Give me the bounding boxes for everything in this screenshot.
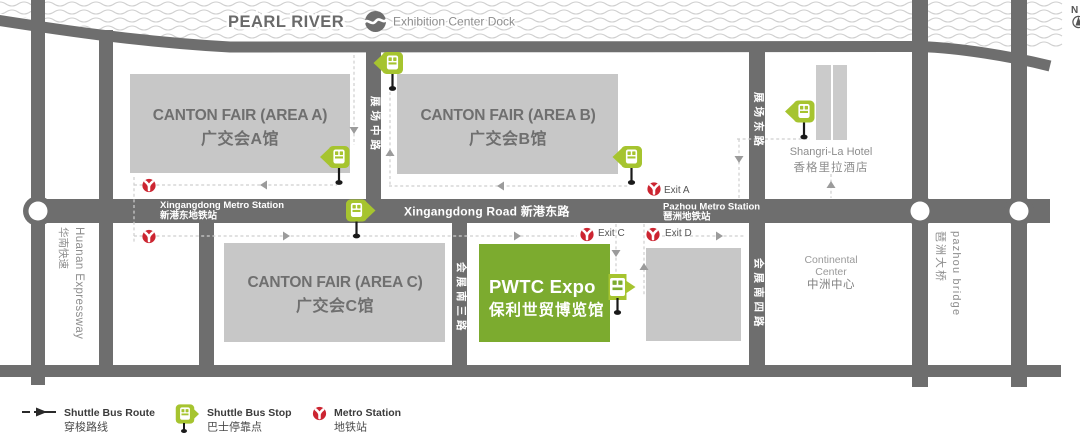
svg-text:琶洲地铁站: 琶洲地铁站 (663, 211, 711, 223)
svg-text:CANTON FAIR (AREA B): CANTON FAIR (AREA B) (420, 107, 595, 124)
svg-text:中洲中心: 中洲中心 (807, 278, 855, 291)
svg-text:pazhou bridge: pazhou bridge (950, 231, 962, 316)
svg-text:保利世贸博览馆: 保利世贸博览馆 (488, 300, 605, 319)
svg-text:CANTON FAIR (AREA A): CANTON FAIR (AREA A) (153, 107, 328, 124)
svg-text:琶洲大桥: 琶洲大桥 (934, 231, 948, 283)
svg-text:Shuttle Bus Route: Shuttle Bus Route (64, 407, 155, 419)
svg-text:展场东路: 展场东路 (753, 92, 766, 150)
svg-text:华南快速: 华南快速 (57, 227, 70, 269)
svg-text:PWTC Expo: PWTC Expo (489, 276, 596, 297)
svg-text:展场中路: 展场中路 (369, 96, 382, 154)
svg-text:地铁站: 地铁站 (334, 420, 367, 434)
svg-text:穿梭路线: 穿梭路线 (64, 420, 108, 434)
svg-text:Shangri-La Hotel: Shangri-La Hotel (790, 146, 873, 158)
svg-text:Exhibition Center Dock: Exhibition Center Dock (393, 15, 516, 29)
svg-text:Shuttle Bus Stop: Shuttle Bus Stop (207, 407, 292, 419)
svg-text:新港东地铁站: 新港东地铁站 (160, 210, 218, 222)
svg-text:会展南四路: 会展南四路 (753, 258, 766, 331)
svg-text:CANTON FAIR (AREA C): CANTON FAIR (AREA C) (247, 274, 422, 291)
svg-text:巴士停靠点: 巴士停靠点 (207, 420, 262, 434)
svg-text:香格里拉酒店: 香格里拉酒店 (794, 160, 869, 174)
svg-text:广交会B馆: 广交会B馆 (469, 129, 547, 148)
svg-text:N: N (1071, 5, 1078, 16)
svg-text:广交会A馆: 广交会A馆 (201, 129, 279, 148)
svg-text:Xingangdong Road 新港东路: Xingangdong Road 新港东路 (404, 204, 570, 219)
svg-text:Center: Center (815, 266, 847, 278)
svg-text:Exit A: Exit A (664, 185, 690, 196)
svg-text:Exit C: Exit C (598, 228, 625, 239)
svg-text:Exit D: Exit D (665, 228, 692, 239)
svg-text:Xingangdong Metro Station: Xingangdong Metro Station (160, 200, 284, 211)
svg-text:广交会C馆: 广交会C馆 (296, 296, 374, 315)
svg-text:Metro Station: Metro Station (334, 407, 401, 419)
svg-text:PEARL RIVER: PEARL RIVER (228, 13, 344, 31)
svg-text:会展南三路: 会展南三路 (455, 262, 468, 335)
svg-text:Continental: Continental (804, 254, 857, 266)
svg-text:Huanan Expressway: Huanan Expressway (73, 227, 85, 339)
